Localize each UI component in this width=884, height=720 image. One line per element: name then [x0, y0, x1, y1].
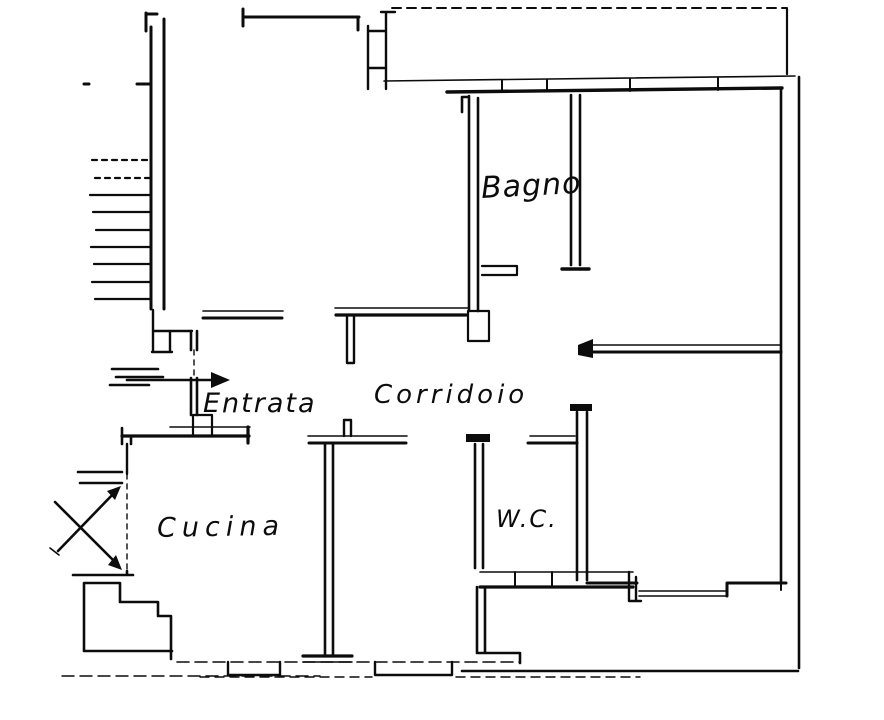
label-bathroom: Bagno [480, 166, 582, 206]
label-kitchen: Cucina [157, 511, 285, 544]
scanned-floor-plan-page: Bagno Entrata Corridoio Cucina W.C. [0, 0, 884, 720]
stairwell-lower-step [152, 310, 192, 352]
entrance-arrow [110, 369, 230, 388]
wc-window-ticks [515, 572, 552, 587]
stair-treads-faint [92, 160, 150, 178]
wc-left-wall [475, 444, 483, 568]
bottom-walls [177, 662, 798, 677]
kitchen-walls [62, 427, 320, 676]
interior-wall-door-stop [578, 339, 593, 358]
wc-right-wall [577, 412, 587, 580]
middle-room-walls [303, 444, 352, 662]
bathroom-walls [462, 95, 589, 341]
balcony-cross [50, 486, 122, 570]
middle-room-left-wall [325, 444, 333, 656]
stairwell [84, 9, 395, 309]
wc-left-wall-cap [466, 434, 490, 442]
bathroom-wall-pilaster [468, 311, 489, 341]
corridor-walls [203, 308, 781, 443]
corridor-door-jamb-down [347, 315, 354, 363]
corridor-door-jamb-up [344, 420, 351, 436]
kitchen-top-wall [122, 427, 249, 443]
label-entrance: Entrata [203, 388, 317, 419]
bathroom-door-stub [482, 266, 517, 275]
entrance-door-marks [110, 369, 163, 385]
room-labels: Bagno Entrata Corridoio Cucina W.C. [157, 166, 583, 544]
right-room-walls [587, 583, 786, 596]
top-wall-inner-line [447, 88, 782, 92]
wc-lower-wall [477, 587, 520, 663]
label-wc: W.C. [496, 505, 558, 533]
right-room-bottom-wall [587, 583, 786, 596]
entrance-arrow-head [211, 372, 230, 388]
label-corridor: Corridoio [374, 380, 528, 410]
kitchen-bottom-corner [73, 571, 133, 575]
stair-treads [90, 195, 150, 299]
balcony-rail [639, 591, 726, 596]
wc-right-wall-cap [570, 404, 592, 411]
balcony-door-jamb [78, 472, 122, 483]
annex-room-walls [84, 583, 172, 659]
bathroom-left-wall [462, 96, 478, 311]
landing-bar [243, 9, 359, 30]
balcony-cross-lines [55, 491, 118, 565]
shaft [368, 12, 395, 89]
floor-plan-drawing: Bagno Entrata Corridoio Cucina W.C. [0, 0, 884, 720]
top-wall-outer-line [384, 76, 795, 81]
outer-walls [384, 8, 799, 668]
bottom-window-boxes [228, 662, 452, 675]
